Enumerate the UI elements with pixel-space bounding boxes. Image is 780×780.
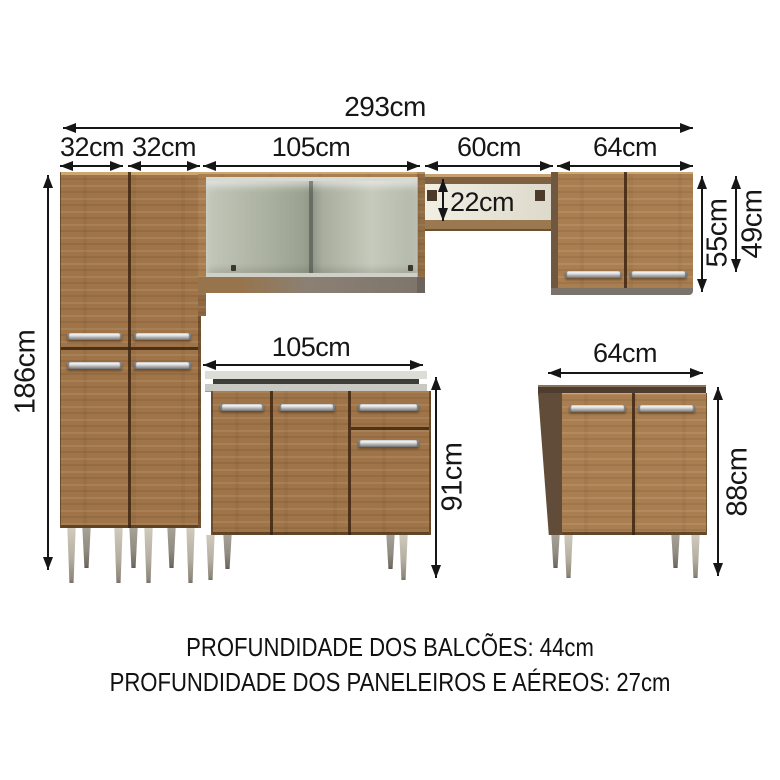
dim-aerial-cabinet-width-label: 64cm <box>593 134 657 161</box>
pantry-upper-door-handle-right <box>134 333 191 340</box>
dim-pantry-right-width-arrow <box>128 165 200 167</box>
counter-door-divider-1 <box>270 391 273 535</box>
dim-base-cabinet-height-arrow <box>717 387 719 576</box>
dim-aerial-cabinet-width-arrow <box>557 165 693 167</box>
pantry-door-divider <box>61 347 198 350</box>
base-cabinet-front-leg-2 <box>689 535 702 578</box>
counter-drawer-handle <box>358 404 419 411</box>
dim-pantry-left-width-arrow <box>60 165 123 167</box>
pantry-column-divider <box>128 172 131 528</box>
aerial-cabinet-handle-left <box>565 271 622 278</box>
pantry-lower-door-handle-right <box>134 362 191 369</box>
pantry-front-leg-3 <box>142 528 155 583</box>
open-shelf-bottom-board <box>425 220 557 231</box>
glass-door-hinge-left <box>231 265 236 271</box>
counter-drawer-divider <box>351 427 429 430</box>
dim-aerial-height-label: 55cm <box>704 199 733 268</box>
pantry-back-leg-1 <box>80 528 93 568</box>
pantry-upper-door-handle-left <box>67 333 122 340</box>
counter-bottom-edge <box>213 532 429 535</box>
countertop <box>205 371 427 391</box>
countertop-surface <box>205 371 427 379</box>
dim-glass-aerial-width-arrow <box>203 165 420 167</box>
glass-door-divider <box>309 181 313 273</box>
base-cabinet-front-leg-1 <box>562 535 575 578</box>
pantry-lower-door-handle-left <box>67 362 122 369</box>
dim-base-cabinet-width-label: 64cm <box>593 340 657 367</box>
footer-depth-pantries-aerials: PROFUNDIDADE DOS PANELEIROS E AÉREOS: 27… <box>59 668 722 698</box>
base-cabinet-handle-right <box>638 405 695 412</box>
aerial-cabinet-door-divider <box>624 172 627 288</box>
dim-counter-height-label: 91cm <box>439 443 468 512</box>
counter-back-leg-2 <box>384 535 397 569</box>
dim-pantry-left-width-label: 32cm <box>60 134 124 161</box>
glass-aerial-cabinet <box>198 172 425 293</box>
counter-door-divider-2 <box>348 391 351 535</box>
counter-front-leg-1 <box>204 535 217 580</box>
base-cabinet-side-panel <box>538 393 562 535</box>
aerial-cabinet <box>551 172 693 295</box>
dim-total-width-arrow <box>63 127 693 129</box>
dim-base-cabinet-width-arrow <box>548 372 703 374</box>
dim-pantry-height-arrow <box>47 175 49 570</box>
dim-glass-aerial-width-label: 105cm <box>272 134 351 161</box>
dim-counter-width-arrow <box>203 364 423 366</box>
pantry-back-leg-3 <box>165 528 178 568</box>
base-cabinet-handle-left <box>569 405 626 412</box>
dim-aerial-door-height-label: 49cm <box>739 190 768 259</box>
base-cabinet-door-divider <box>632 393 635 535</box>
base-cabinet-doors <box>562 393 707 535</box>
glass-door-hinge-right <box>408 265 413 271</box>
product-dimension-diagram: 293cm 32cm 32cm 105cm 60cm 64cm 186cm <box>0 0 780 780</box>
counter-door-handle-3 <box>358 440 419 447</box>
pantry-front-leg-2 <box>112 528 125 583</box>
pantry-cabinets-body <box>60 172 201 528</box>
dim-pantry-right-width-label: 32cm <box>132 134 196 161</box>
counter-front-leg-2 <box>397 535 410 580</box>
aerial-cabinet-doors <box>558 172 693 288</box>
counter-cabinet-body <box>211 391 431 535</box>
counter-door-handle-2 <box>279 404 335 411</box>
dim-counter-width-label: 105cm <box>272 334 351 361</box>
dim-total-width-label: 293cm <box>344 93 426 121</box>
dim-base-cabinet-height-label: 88cm <box>724 448 753 517</box>
aerial-cabinet-side-panel <box>551 172 558 295</box>
dim-open-shelf-width-arrow <box>425 165 553 167</box>
footer-depth-counters: PROFUNDIDADE DOS BALCÕES: 44cm <box>59 633 722 663</box>
pantry-bottom-edge <box>61 525 198 528</box>
glass-aerial-side-panel-tail <box>198 293 206 316</box>
pantry-front-leg-4 <box>184 528 197 583</box>
dim-open-shelf-height-label: 22cm <box>450 189 514 216</box>
aerial-cabinet-bottom-board <box>551 288 693 295</box>
counter-door-handle-1 <box>220 404 264 411</box>
pantry-back-leg-2 <box>127 528 140 568</box>
dim-open-shelf-width-label: 60cm <box>457 134 521 161</box>
base-cabinet-back-leg-1 <box>549 535 562 568</box>
counter-back-leg-1 <box>221 535 234 569</box>
dim-pantry-height-label: 186cm <box>12 330 41 415</box>
base-cabinet-bottom-edge <box>562 532 706 535</box>
dim-open-shelf-height-arrow <box>442 179 444 221</box>
open-shelf-bracket-right <box>535 190 545 201</box>
glass-aerial-bottom-board <box>198 277 425 293</box>
aerial-cabinet-handle-right <box>630 271 687 278</box>
glass-aerial-right-shade <box>417 172 425 293</box>
pantry-front-leg-1 <box>65 528 78 583</box>
base-cabinet-back-leg-2 <box>669 535 682 568</box>
glass-aerial-top-edge <box>198 172 425 174</box>
open-shelf-bracket-left <box>427 190 437 201</box>
